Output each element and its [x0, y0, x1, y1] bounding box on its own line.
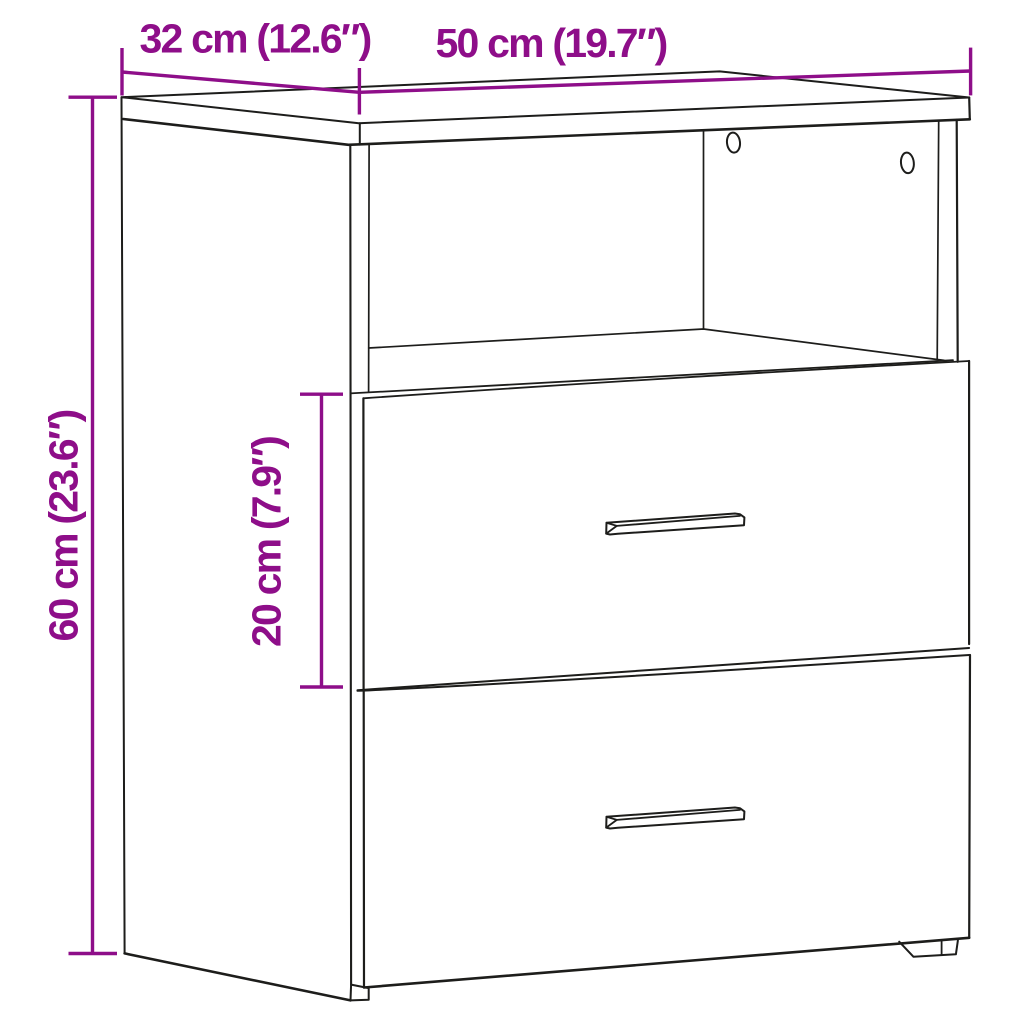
svg-text:32 cm (12.6″): 32 cm (12.6″): [140, 16, 371, 62]
svg-text:50 cm (19.7″): 50 cm (19.7″): [436, 20, 667, 66]
svg-text:20 cm (7.9″): 20 cm (7.9″): [244, 437, 290, 647]
svg-text:60 cm (23.6″): 60 cm (23.6″): [41, 410, 87, 641]
